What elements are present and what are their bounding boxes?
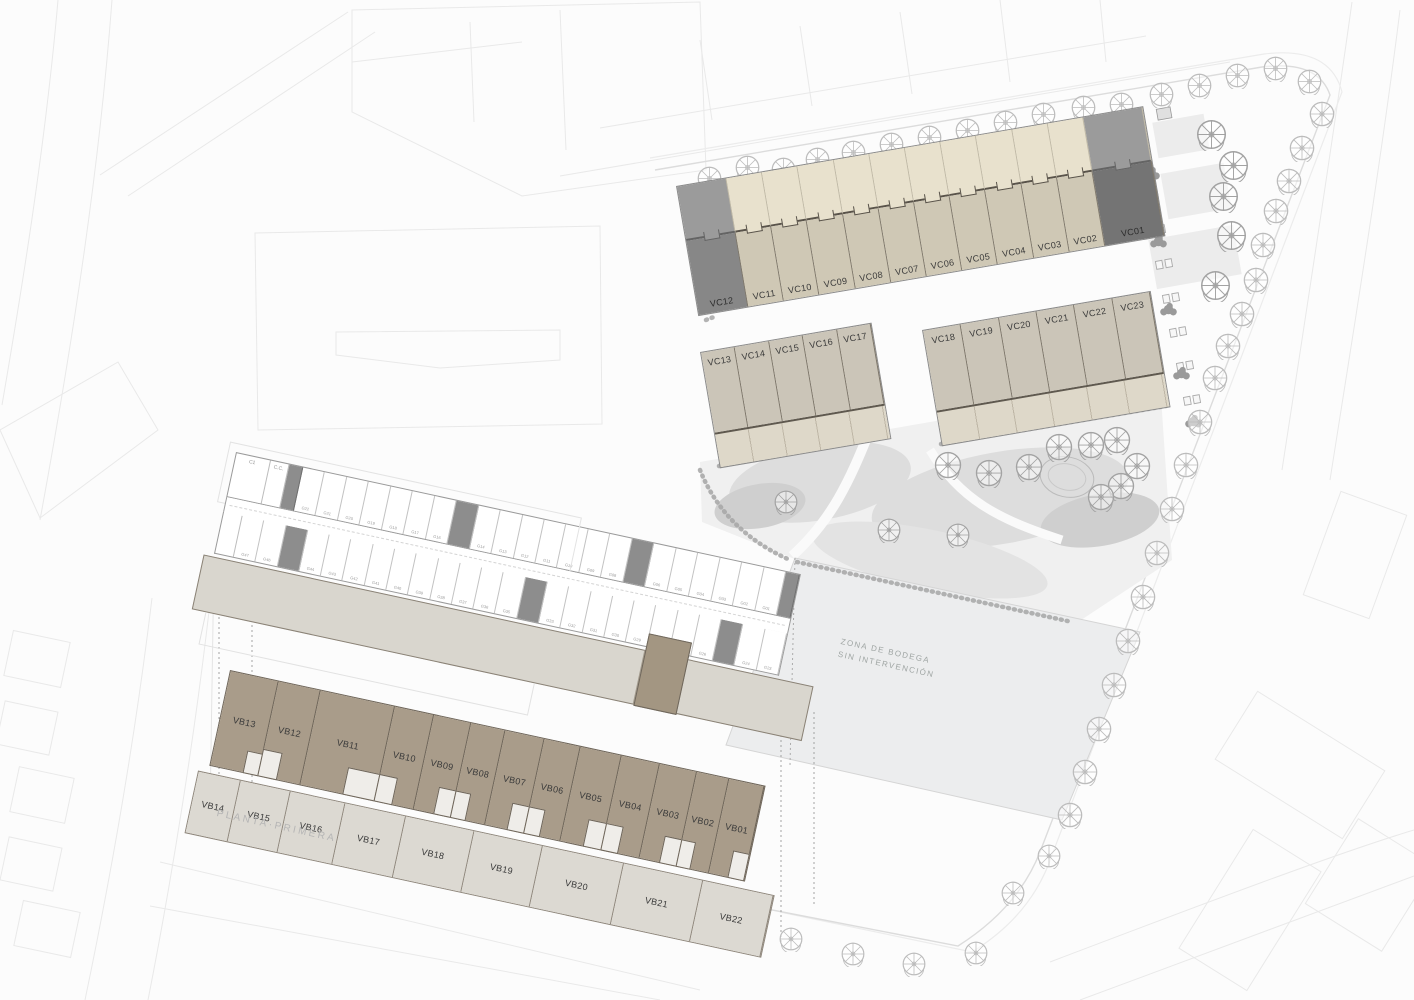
storage-cell-label: G26 <box>698 650 707 658</box>
vc-unit-label: VC20 <box>1005 313 1042 397</box>
vb-unit-label: VB02 <box>681 814 715 872</box>
vb-unit-cell: VB19 <box>461 831 543 906</box>
storage-cell-label: G43 <box>328 570 337 578</box>
storage-cell-label: G45 <box>284 561 293 569</box>
storage-cell-label: G32 <box>567 622 576 630</box>
vc-unit-patio <box>677 178 736 241</box>
vb-unit-label: VB20 <box>564 878 589 893</box>
vc-unit-label: VC01 <box>1120 225 1146 243</box>
storage-cell-label: G35 <box>502 608 511 616</box>
vb-unit-label: VB05 <box>569 790 603 848</box>
storage-cell-label: G24 <box>741 660 750 668</box>
vb-unit-label: VB10 <box>383 749 417 807</box>
site-plan-canvas: VC12 VC11 VC10 VC09 VC08 VC07 VC06 VC05 … <box>0 0 1414 1000</box>
storage-cell-label: G25 <box>720 655 729 663</box>
storage-cell-label: G46 <box>262 556 271 564</box>
storage-cell-label: G30 <box>611 632 620 640</box>
vc-unit-label: VC02 <box>1073 233 1099 251</box>
storage-cell-label: G38 <box>436 594 445 602</box>
storage-cell-label: G33 <box>545 617 554 625</box>
vb-unit-label: VB21 <box>644 895 669 910</box>
storage-cell-label: G40 <box>393 584 402 592</box>
vc-unit-floor: VC01 <box>1093 161 1165 245</box>
vb-unit-cell: VB18 <box>393 816 475 891</box>
storage-cell-label: G44 <box>306 566 315 574</box>
vb-unit-label: VB08 <box>456 765 490 823</box>
vc-unit-label: VC19 <box>968 319 1005 403</box>
vc-unit-patio <box>1083 107 1151 171</box>
vc-unit-label: VC22 <box>1081 300 1118 384</box>
storage-cell-label: G47 <box>240 552 249 560</box>
storage-cell-label: G42 <box>349 575 358 583</box>
vc-unit-label: VC21 <box>1043 306 1080 390</box>
vb-unit-label: VB09 <box>420 758 454 816</box>
vc-unit-label: VC12 <box>709 295 735 313</box>
vb-unit-label: VB12 <box>268 725 302 783</box>
vc-unit-label: VC11 <box>752 288 777 306</box>
vc-unit-label: VC05 <box>966 251 992 269</box>
vc-unit-label: VC03 <box>1037 239 1063 257</box>
vb-unit-label: VB18 <box>420 847 445 862</box>
vb-unit-label: VB19 <box>489 862 514 877</box>
vc-unit-label: VC04 <box>1001 245 1027 263</box>
vc-unit-label: VC08 <box>859 269 885 287</box>
vb-unit-label: VB04 <box>609 798 643 856</box>
storage-cell-label: G39 <box>415 589 424 597</box>
storage-cell-label: G31 <box>589 627 598 635</box>
storage-cell-label: G34 <box>524 613 533 621</box>
vc-unit-label: VC18 <box>930 326 967 410</box>
vb-unit-label: VB06 <box>530 781 564 839</box>
vc-unit-label: VC23 <box>1119 293 1156 377</box>
vb-unit-label: VB22 <box>719 911 744 926</box>
vb-unit-label: VB13 <box>223 715 257 773</box>
vc-unit-label: VC06 <box>930 257 956 275</box>
storage-cell-label: G41 <box>371 580 380 588</box>
vb-unit-label: VB11 <box>326 737 359 795</box>
vc-unit-label: VC10 <box>787 282 813 300</box>
vb-unit-label: VB17 <box>356 833 381 848</box>
storage-cell-label: G36 <box>480 603 489 611</box>
vc-unit-label: VC09 <box>823 276 849 294</box>
vb-unit-label: VB03 <box>646 806 680 864</box>
vb-unit-label: VB01 <box>715 821 749 879</box>
storage-cell-label: G23 <box>763 665 772 673</box>
storage-cell-label: G29 <box>632 636 641 644</box>
vb-unit-cell: VB22 <box>690 881 774 957</box>
vc-unit-label: VC07 <box>894 263 920 281</box>
storage-cell-label: G37 <box>458 599 467 607</box>
vb-unit-label: VB07 <box>493 773 527 831</box>
